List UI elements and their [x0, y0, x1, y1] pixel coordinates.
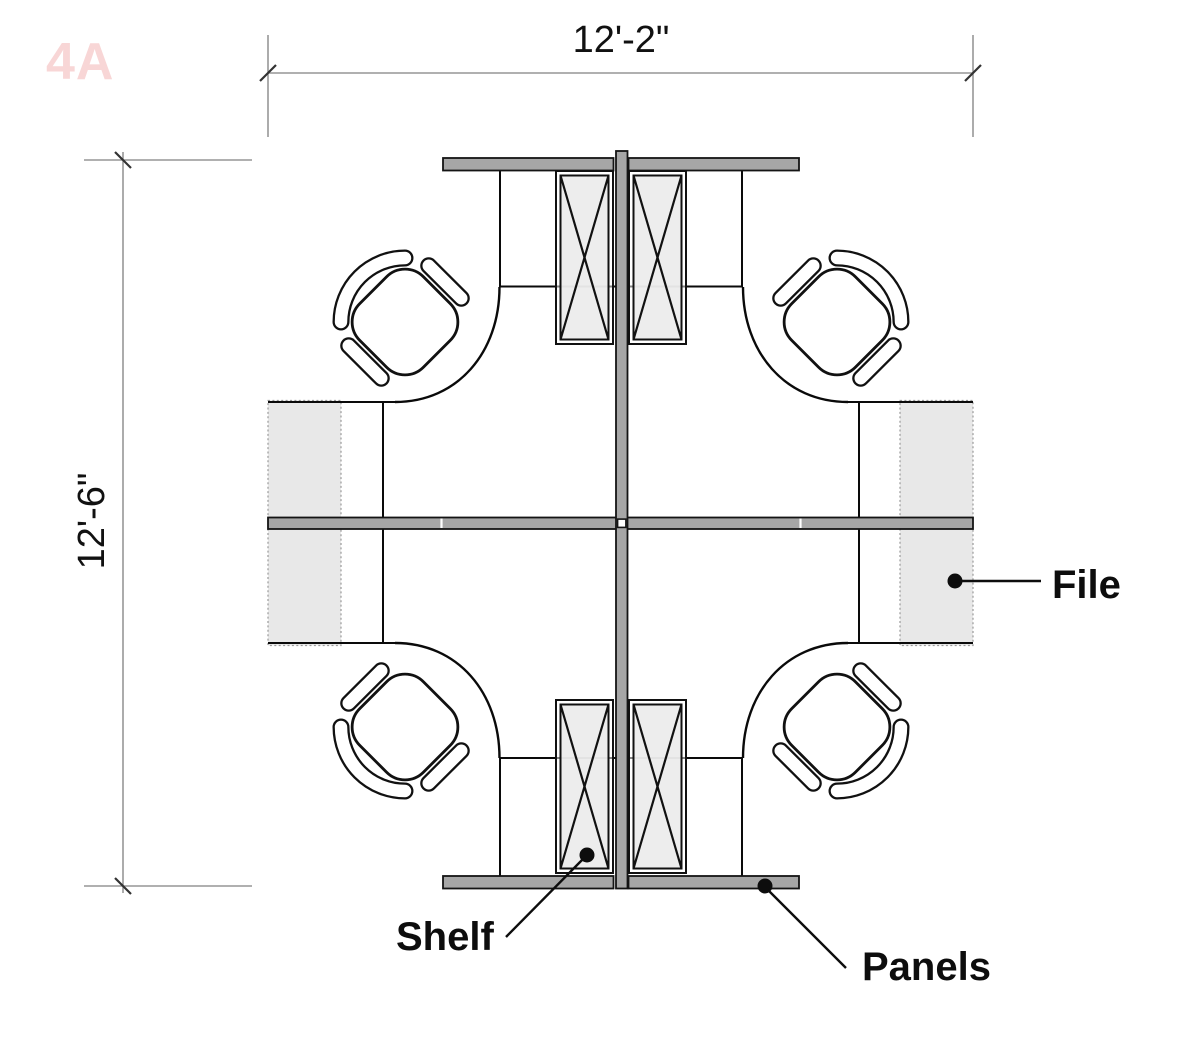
callout-leader — [506, 859, 583, 937]
file-cabinet — [900, 401, 973, 520]
task-chair — [773, 258, 901, 386]
plan-sheet: 12'-2" 12'-6" File Shelf Panels 4A — [0, 0, 1200, 1048]
panel-junction — [618, 519, 626, 527]
wing-panel-top-right — [629, 158, 800, 171]
dimension-label-top: 12'-2" — [573, 19, 670, 61]
overhead-shelf — [556, 700, 613, 873]
callout-label-file: File — [1052, 563, 1121, 607]
overhead-shelf — [629, 700, 686, 873]
wing-panel-top-left — [443, 158, 614, 171]
file-cabinet — [268, 528, 341, 646]
callout-label-shelf: Shelf — [396, 915, 494, 959]
plan-code-label: 4A — [46, 33, 114, 91]
callout-panels: Panels — [758, 879, 991, 990]
file-cabinet — [268, 401, 341, 520]
dimension-top: 12'-2" — [260, 19, 981, 137]
dimension-label-left: 12'-6" — [71, 473, 113, 570]
overhead-shelf — [629, 171, 686, 344]
callout-leader — [768, 890, 846, 968]
file-cabinet — [900, 528, 973, 646]
wing-panel-bottom-left — [443, 876, 614, 889]
callout-label-panels: Panels — [862, 945, 991, 989]
overhead-shelf — [556, 171, 613, 344]
task-chair — [341, 258, 469, 386]
wing-panel-bottom-right — [629, 876, 800, 889]
dimension-left: 12'-6" — [71, 152, 252, 894]
task-chair — [341, 663, 469, 791]
cubicle-plan-drawing: 12'-2" 12'-6" File Shelf Panels 4A — [0, 0, 1200, 1048]
task-chair — [773, 663, 901, 791]
